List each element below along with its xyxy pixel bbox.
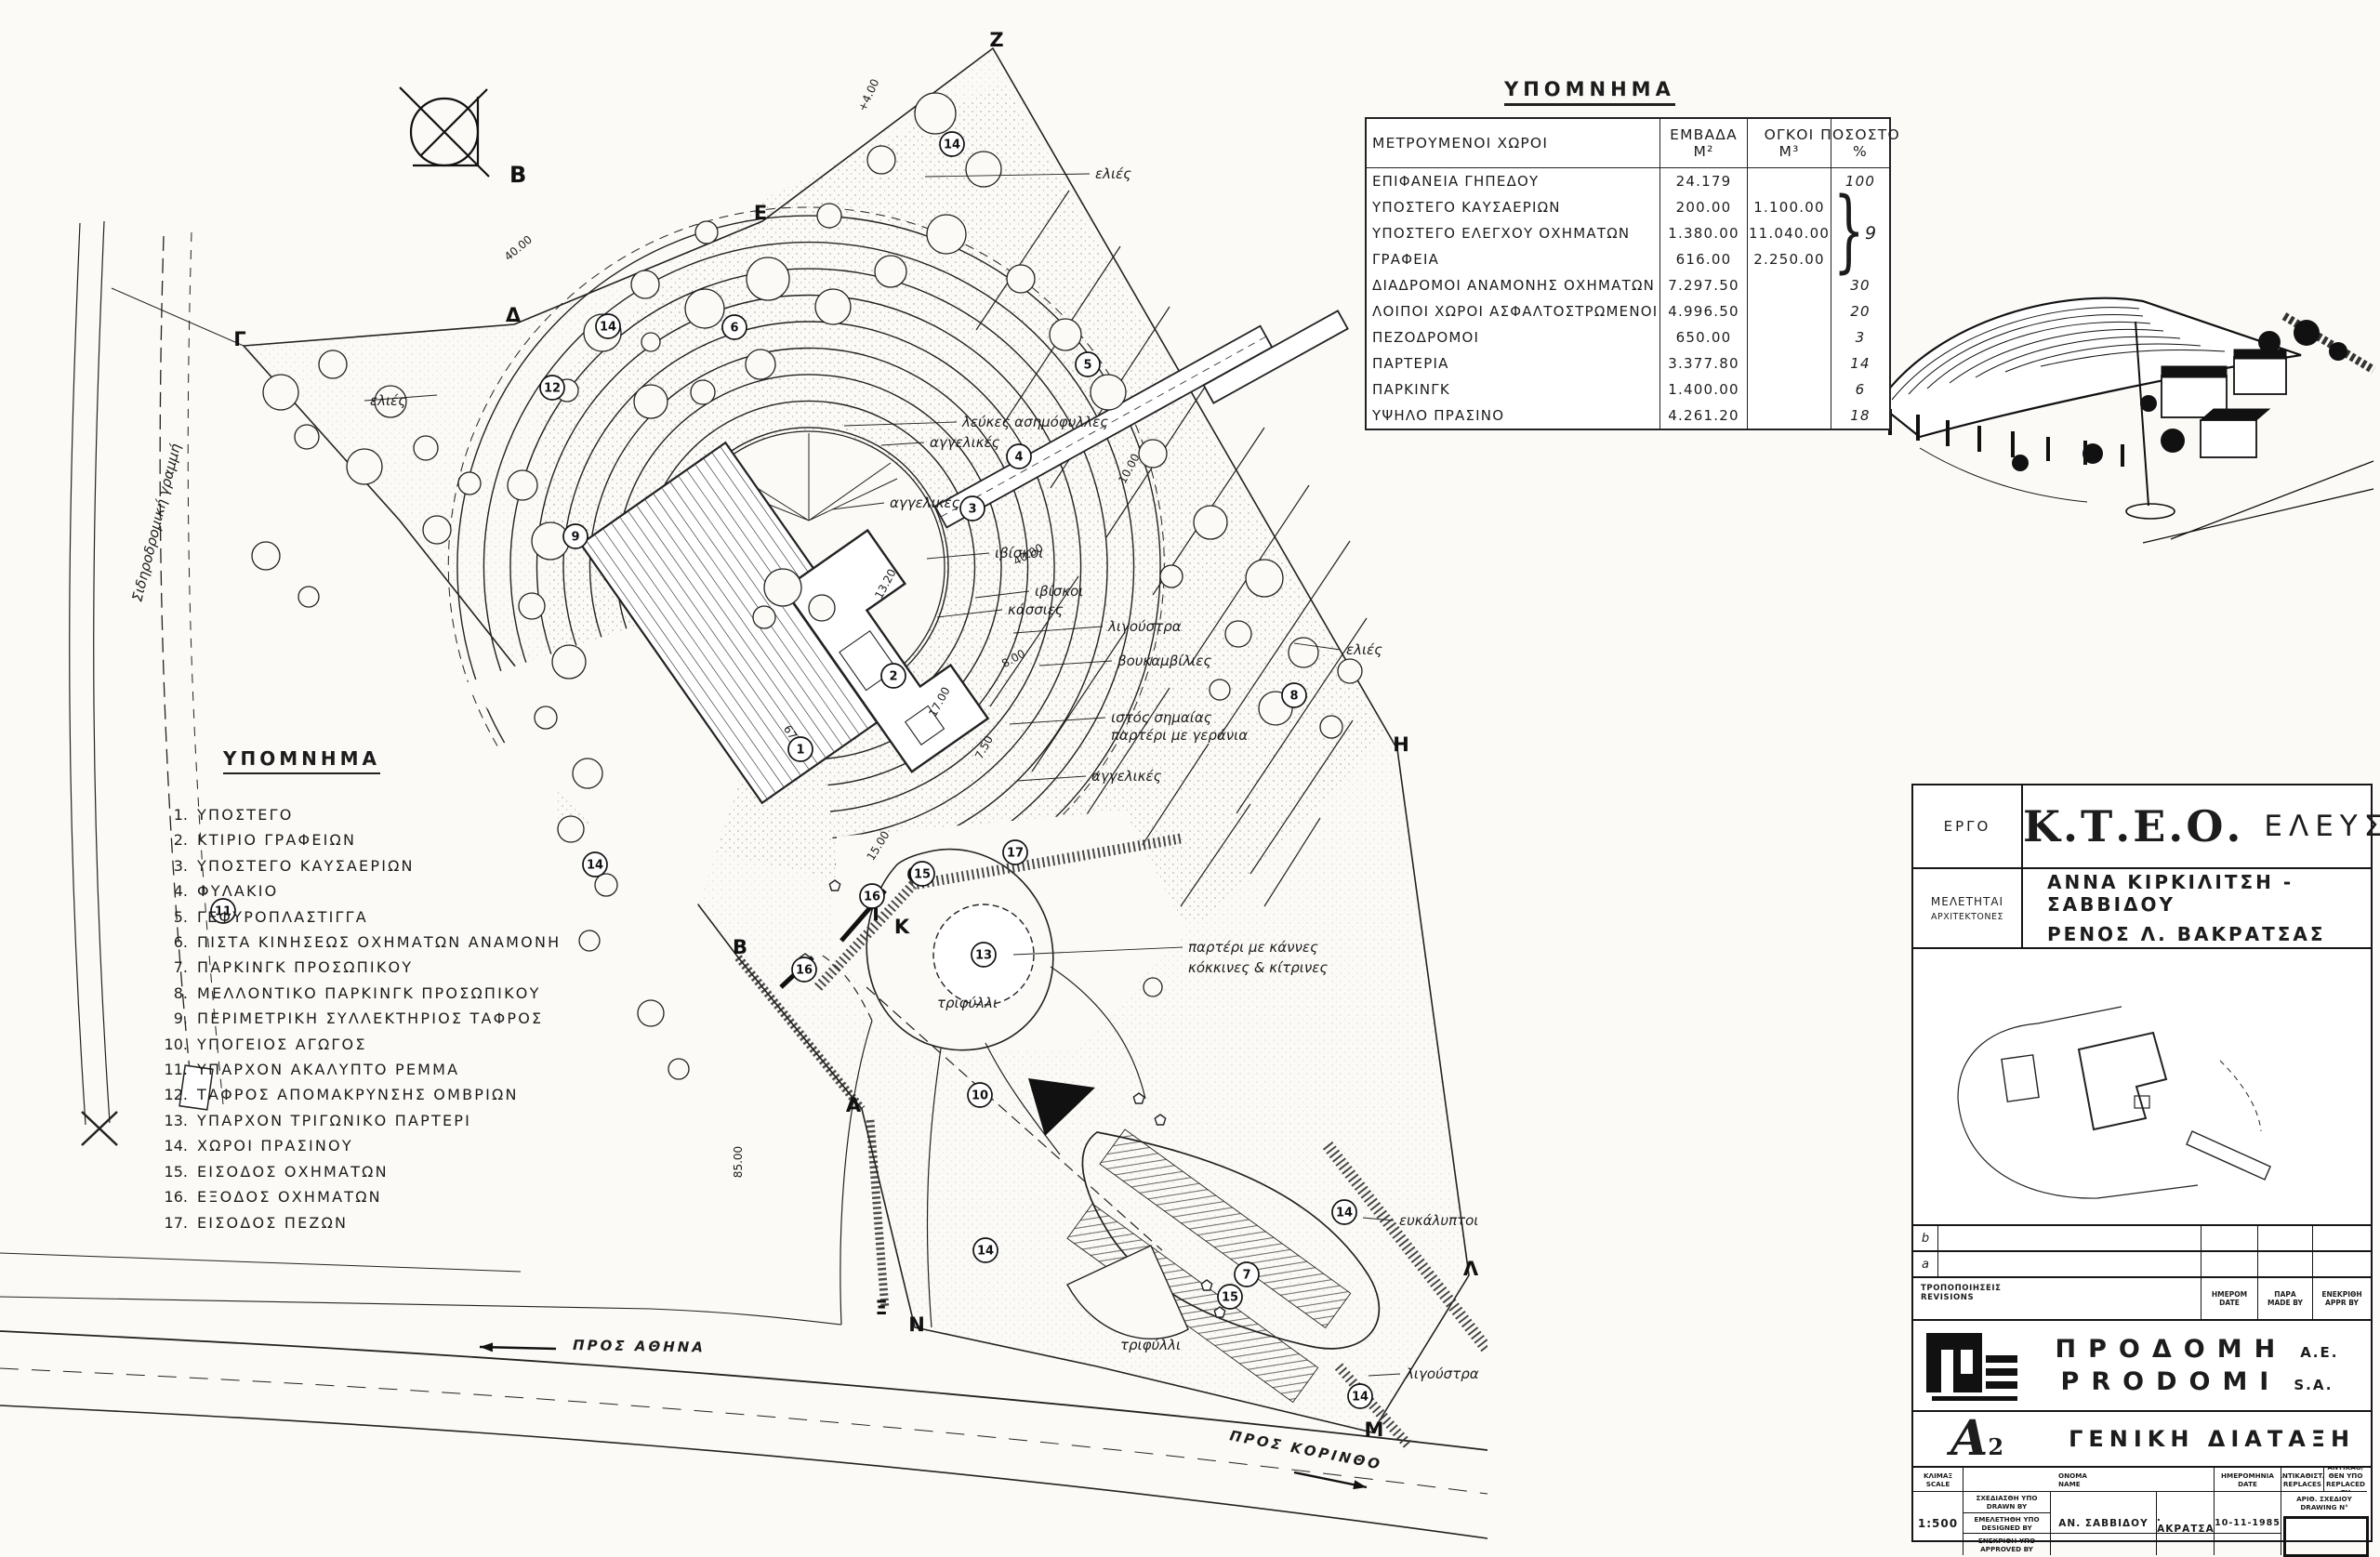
company-name-gr: ΠΡΟΔΟΜΗ	[2056, 1335, 2288, 1364]
svg-text:14: 14	[600, 321, 616, 335]
svg-text:10: 10	[972, 1089, 988, 1103]
plan-marker: 14	[1332, 1200, 1356, 1224]
tree-icon	[519, 593, 545, 619]
tree-icon	[1091, 375, 1126, 410]
date-label: ΗΜΕΡΟΜΗΝΙΑ	[2221, 1471, 2274, 1480]
tree-icon	[1320, 716, 1342, 738]
designer-name: Ρ. ΒΑΚΡΑΤΣΑΣ	[2157, 1513, 2215, 1534]
plan-note: λεύκες ασημόφυλλες	[961, 414, 1108, 430]
plan-note: ιβίσκοι	[1035, 583, 1083, 600]
rev-made-label: ΠΑΡΑ	[2274, 1290, 2295, 1299]
table-row: ΔΙΑΔΡΟΜΟΙ ΑΝΑΜΟΝΗΣ ΟΧΗΜΑΤΩΝ7.297.5030	[1367, 272, 1889, 298]
tree-icon	[1338, 659, 1362, 683]
architects-label: ΑΡΧΙΤΕΚΤΟΝΕΣ	[1931, 912, 2003, 922]
tree-icon	[753, 606, 775, 628]
legend-item: 6.ΠΙΣΤΑ ΚΙΝΗΣΕΩΣ ΟΧΗΜΑΤΩΝ ΑΝΑΜΟΝΗ	[156, 930, 593, 955]
plan-marker: 6	[722, 315, 747, 339]
designer-name: ΑΝ. ΣΑΒΒΙΔΟΥ	[2058, 1518, 2148, 1529]
tree-icon	[746, 350, 775, 379]
revisions-label-en: REVISIONS	[1921, 1293, 2088, 1302]
plan-letter: Μ	[1365, 1418, 1384, 1441]
drawing-no-box	[2283, 1516, 2369, 1557]
plan-marker: 14	[1348, 1384, 1372, 1408]
tree-icon	[1160, 565, 1183, 587]
tree-icon	[1225, 621, 1251, 647]
svg-text:9: 9	[571, 531, 579, 545]
sheet-code: A2	[1950, 1415, 2003, 1463]
plan-marker: 16	[792, 957, 816, 982]
plan-note: ιστός σημαίας	[1111, 709, 1212, 726]
tree-icon	[685, 289, 724, 328]
rev-appr-label: ΕΝΕΚΡΙΘΗ	[2321, 1290, 2361, 1299]
area-table-header: ΜΕΤΡΟΥΜΕΝΟΙ ΧΩΡΟΙ ΕΜΒΑΔΑ Μ² ΟΓΚΟΙ Μ³ ΠΟΣ…	[1367, 119, 1889, 168]
svg-text:17: 17	[1007, 847, 1024, 861]
svg-text:14: 14	[1336, 1207, 1353, 1221]
tree-icon	[747, 257, 789, 300]
revision-row-label: a	[1913, 1252, 1938, 1276]
architect-name: ΡΕΝΟΣ Λ. ΒΑΚΡΑΤΣΑΣ	[2047, 923, 2371, 945]
legend-item: 10.ΥΠΟΓΕΙΟΣ ΑΓΩΓΟΣ	[156, 1032, 593, 1057]
tree-icon	[668, 1059, 689, 1079]
tree-icon	[319, 350, 347, 378]
tree-icon	[1289, 638, 1318, 667]
legend: ΥΠΟΜΝΗΜΑ 1.ΥΠΟΣΤΕΓΟ2.ΚΤΙΡΙΟ ΓΡΑΦΕΙΩΝ3.ΥΠ…	[156, 747, 593, 1235]
plan-marker: 14	[940, 132, 964, 156]
tree-icon	[695, 221, 718, 244]
legend-title: ΥΠΟΜΝΗΜΑ	[223, 747, 380, 774]
plan-letter: Β	[733, 936, 747, 958]
plan-letter: Γ	[233, 328, 245, 350]
svg-text:12: 12	[544, 382, 561, 396]
revisions-label-gr: ΤΡΟΠΟΠΟΙΗΣΕΙΣ	[1921, 1284, 2088, 1293]
plan-marker: 2	[881, 664, 906, 688]
drawing-no-label: ΑΡΙΘ. ΣΧΕΔΙΟΥ DRAWING N°	[2281, 1495, 2367, 1511]
tree-icon	[867, 146, 895, 174]
table-row: ΕΠΙΦΑΝΕΙΑ ΓΗΠΕΔΟΥ24.179100	[1367, 168, 1889, 194]
plan-letter: Ν	[908, 1313, 925, 1336]
plan-dim: +4.00	[855, 77, 881, 113]
plan-letter: Α	[846, 1094, 862, 1116]
rev-date-label: ΗΜΕΡΟΜ	[2212, 1290, 2247, 1299]
approved-by-label: ΕΝΕΚΡΙΘΗ ΥΠΟ	[1978, 1537, 2035, 1545]
tree-icon	[638, 1000, 664, 1026]
tree-icon	[641, 333, 660, 351]
table-row: ΥΠΟΣΤΕΓΟ ΚΑΥΣΑΕΡΙΩΝ200.001.100.00	[1367, 194, 1889, 220]
area-summary: ΥΠΟΜΝΗΜΑ ΜΕΤΡΟΥΜΕΝΟΙ ΧΩΡΟΙ ΕΜΒΑΔΑ Μ² ΟΓΚ…	[1365, 78, 1891, 430]
plan-note: λιγούστρα	[1107, 618, 1182, 635]
plan-marker: 16	[860, 884, 884, 908]
plan-dim: 85.00	[732, 1146, 745, 1178]
tree-icon	[508, 470, 537, 500]
plan-marker: 12	[540, 376, 564, 400]
plan-note: Σιδηροδρομική γραμμή	[128, 442, 184, 603]
svg-text:6: 6	[730, 322, 738, 336]
tree-icon	[535, 706, 557, 729]
plan-marker: 13	[972, 943, 996, 967]
plan-marker: 1	[788, 737, 813, 761]
scale-value: 1:500	[1918, 1517, 1958, 1530]
plan-note: κάσσιες	[1008, 601, 1064, 618]
replaced-by-label: ΑΝΤΙΚΑΘ/ΘΕΝ ΥΠΟ	[2324, 1468, 2367, 1480]
plan-note: αγγελικές	[890, 495, 960, 511]
prodomi-logo	[1926, 1329, 2023, 1402]
col-header: ΜΕΤΡΟΥΜΕΝΟΙ ΧΩΡΟΙ	[1367, 119, 1660, 167]
project-name: Κ.Τ.Ε.Ο.	[2023, 801, 2243, 851]
architect-name: ΑΝΝΑ ΚΙΡΚΙΛΙΤΣΗ - ΣΑΒΒΙΔΟΥ	[2047, 871, 2371, 916]
tree-icon	[927, 215, 966, 254]
svg-text:14: 14	[944, 139, 960, 152]
tree-icon	[966, 152, 1001, 187]
svg-text:16: 16	[864, 891, 880, 904]
road-label: ΠΡΟΣ ΑΘΗΝΑ	[573, 1337, 706, 1355]
table-row: ΛΟΙΠΟΙ ΧΩΡΟΙ ΑΣΦΑΛΤΟΣΤΡΩΜΕΝΟΙ4.996.5020	[1367, 298, 1889, 324]
revision-row-label: b	[1913, 1226, 1938, 1250]
date-value: 10-11-1985	[2215, 1518, 2281, 1528]
plan-marker: 17	[1003, 840, 1027, 864]
tree-icon	[552, 645, 586, 679]
plan-letter: Ε	[754, 202, 767, 224]
tree-icon	[1246, 560, 1283, 597]
plan-marker: 8	[1282, 683, 1306, 707]
legend-item: 17.ΕΙΣΟΔΟΣ ΠΕΖΩΝ	[156, 1210, 593, 1235]
plan-note: ελιές	[370, 392, 406, 409]
plan-marker: 14	[596, 314, 620, 338]
tree-icon	[458, 472, 481, 495]
svg-text:5: 5	[1083, 359, 1091, 373]
plan-marker: 4	[1007, 444, 1031, 468]
col-header: ΕΜΒΑΔΑ Μ²	[1660, 119, 1748, 167]
legend-item: 9.ΠΕΡΙΜΕΤΡΙΚΗ ΣΥΛΛΕΚΤΗΡΙΟΣ ΤΑΦΡΟΣ	[156, 1006, 593, 1031]
designers-label: ΜΕΛΕΤΗΤΑΙ	[1931, 895, 2003, 908]
tree-icon	[691, 380, 715, 404]
plan-note: κόκκινες & κίτρινες	[1188, 959, 1328, 976]
plan-note: παρτέρι με γεράνια	[1111, 727, 1248, 744]
plan-marker: 15	[1218, 1285, 1242, 1309]
legend-item: 5.ΓΕΦΥΡΟΠΛΑΣΤΙΓΓΑ	[156, 904, 593, 930]
table-row: ΥΠΟΣΤΕΓΟ ΕΛΕΓΧΟΥ ΟΧΗΜΑΤΩΝ1.380.0011.040.…	[1367, 220, 1889, 246]
legend-item: 2.ΚΤΙΡΙΟ ΓΡΑΦΕΙΩΝ	[156, 827, 593, 852]
svg-text:15: 15	[914, 868, 931, 882]
project-location: ΕΛΕΥΣΙΝΑΣ	[2264, 810, 2380, 843]
area-table: ΜΕΤΡΟΥΜΕΝΟΙ ΧΩΡΟΙ ΕΜΒΑΔΑ Μ² ΟΓΚΟΙ Μ³ ΠΟΣ…	[1365, 117, 1891, 430]
plan-letter: Ξ	[875, 1297, 887, 1319]
north-arrow-icon	[400, 87, 489, 177]
tree-icon	[1139, 440, 1167, 468]
col-header: ΟΓΚΟΙ Μ³	[1748, 119, 1831, 167]
plan-note: ευκάλυπτοι	[1399, 1212, 1478, 1229]
tree-icon	[1007, 265, 1035, 293]
tree-icon	[817, 204, 841, 228]
tree-icon	[532, 522, 569, 560]
plan-note: λιγούστρα	[1405, 1366, 1479, 1382]
svg-text:1: 1	[796, 744, 804, 758]
table-row: ΓΡΑΦΕΙΑ616.002.250.00	[1367, 246, 1889, 272]
legend-item: 12.ΤΑΦΡΟΣ ΑΠΟΜΑΚΡΥΝΣΗΣ ΟΜΒΡΙΩΝ	[156, 1082, 593, 1107]
svg-text:2: 2	[889, 670, 897, 684]
drawn-by-label: ΣΧΕΔΙΑΣΘΗ ΥΠΟ	[1976, 1494, 2037, 1502]
name-label: ΟΝΟΜΑ	[2058, 1471, 2087, 1480]
table-row: ΥΨΗΛΟ ΠΡΑΣΙΝΟ4.261.2018	[1367, 402, 1889, 429]
legend-item: 8.ΜΕΛΛΟΝΤΙΚΟ ΠΑΡΚΙΝΓΚ ΠΡΟΣΩΠΙΚΟΥ	[156, 981, 593, 1006]
tree-icon	[764, 569, 801, 606]
table-row: ΠΕΖΟΔΡΟΜΟΙ650.003	[1367, 324, 1889, 350]
tree-icon	[347, 449, 382, 484]
tree-icon	[915, 93, 956, 134]
svg-text:13: 13	[975, 949, 992, 963]
plan-marker: 7	[1235, 1262, 1259, 1287]
plan-note: ελιές	[1346, 641, 1382, 658]
tree-icon	[809, 595, 835, 621]
tree-icon	[1210, 680, 1230, 700]
company-name-en: PRODOMI	[2061, 1367, 2281, 1396]
area-table-title: ΥΠΟΜΝΗΜΑ	[1504, 78, 1675, 106]
legend-item: 14.ΧΩΡΟΙ ΠΡΑΣΙΝΟΥ	[156, 1133, 593, 1158]
svg-text:4: 4	[1014, 451, 1023, 465]
plan-letter: Λ	[1463, 1258, 1479, 1280]
tree-icon	[298, 587, 319, 607]
legend-item: 16.ΕΞΟΔΟΣ ΟΧΗΜΑΤΩΝ	[156, 1184, 593, 1209]
table-row: ΠΑΡΤΕΡΙΑ3.377.8014	[1367, 350, 1889, 376]
svg-text:16: 16	[796, 964, 813, 978]
plan-letter: Ζ	[989, 29, 1003, 51]
tree-icon	[1050, 319, 1081, 350]
plan-note: αγγελικές	[930, 434, 1000, 451]
plan-note: ελιές	[1095, 165, 1131, 182]
plan-note: παρτέρι με κάννες	[1188, 939, 1318, 956]
legend-item: 1.ΥΠΟΣΤΕΓΟ	[156, 802, 593, 827]
key-plan	[1913, 949, 2371, 1226]
svg-text:14: 14	[1352, 1391, 1368, 1405]
svg-text:14: 14	[977, 1245, 994, 1259]
legend-item: 13.ΥΠΑΡΧΟΝ ΤΡΙΓΩΝΙΚΟ ΠΑΡΤΕΡΙ	[156, 1108, 593, 1133]
plan-note: αγγελικές	[1091, 768, 1162, 785]
plan-note: τριφύλλι	[1120, 1337, 1181, 1353]
level-crossing-icon	[82, 1112, 117, 1145]
col-header: ΠΟΣΟΣΤΟ %	[1831, 119, 1889, 167]
plan-marker: 3	[960, 496, 985, 521]
legend-item: 7.ΠΑΡΚΙΝΓΚ ΠΡΟΣΩΠΙΚΟΥ	[156, 955, 593, 980]
tree-icon	[815, 289, 851, 324]
tree-icon	[414, 436, 438, 460]
legend-item: 11.ΥΠΑΡΧΟΝ ΑΚΑΛΥΠΤΟ ΡΕΜΜΑ	[156, 1057, 593, 1082]
svg-text:15: 15	[1222, 1291, 1238, 1305]
tree-icon	[595, 874, 617, 896]
plan-letter: Η	[1393, 733, 1409, 756]
plan-marker: 10	[968, 1083, 992, 1107]
tree-icon	[295, 425, 319, 449]
project-label: ΕΡΓΟ	[1944, 818, 1991, 835]
legend-item: 4.ΦΥΛΑΚΙΟ	[156, 878, 593, 904]
perspective-sketch	[1864, 262, 2380, 546]
plan-marker: 15	[910, 862, 934, 886]
legend-item: 15.ΕΙΣΟΔΟΣ ΟΧΗΜΑΤΩΝ	[156, 1159, 593, 1184]
plan-note: τριφύλλι	[937, 995, 998, 1011]
scale-label: ΚΛΙΜΑΞ	[1924, 1471, 1952, 1480]
table-row: ΠΑΡΚΙΝΓΚ1.400.006	[1367, 376, 1889, 402]
legend-item: 3.ΥΠΟΣΤΕΓΟ ΚΑΥΣΑΕΡΙΩΝ	[156, 853, 593, 878]
tree-icon	[1194, 506, 1227, 539]
arrow-icon	[480, 1342, 493, 1352]
title-block: ΕΡΓΟ Κ.Τ.Ε.Ο. ΕΛΕΥΣΙΝΑΣ ΜΕΛΕΤΗΤΑΙ ΑΡΧΙΤΕ…	[1911, 784, 2373, 1542]
signature-strip: ΚΛΙΜΑΞ SCALE 1:500 ΣΧΕΔΙΑΣΘΗ ΥΠΟ DRAWN B…	[1913, 1468, 2371, 1540]
svg-text:7: 7	[1242, 1269, 1250, 1283]
svg-text:8: 8	[1289, 690, 1298, 704]
plan-marker: 14	[973, 1238, 998, 1262]
tree-icon	[1144, 978, 1162, 996]
road-label: ΠΡΟΣ ΚΟΡΙΝΘΟ	[1228, 1427, 1383, 1472]
designed-by-label: ΕΜΕΛΕΤΗΘΗ ΥΠΟ	[1974, 1515, 2039, 1524]
plan-marker: 9	[563, 524, 588, 548]
svg-text:3: 3	[968, 503, 976, 517]
tree-icon	[423, 516, 451, 544]
tree-icon	[252, 542, 280, 570]
tree-icon	[263, 375, 298, 410]
plan-note: βουκαμβίλιες	[1117, 653, 1211, 669]
compass-label: Β	[509, 162, 526, 188]
tree-icon	[875, 256, 906, 287]
tree-icon	[631, 270, 659, 298]
plan-dim: 40.00	[502, 233, 535, 264]
drawing-sheet: { "legend_list": { "title": "ΥΠΟΜΝΗΜΑ", …	[0, 0, 2380, 1551]
sheet-title: ΓΕΝΙΚΗ ΔΙΑΤΑΞΗ	[2069, 1426, 2355, 1452]
tree-icon	[634, 385, 668, 418]
replaces-label: ΑΝΤΙΚΑΘΙΣΤΑ	[2281, 1471, 2324, 1480]
plan-letter: Δ	[506, 304, 522, 326]
plan-letter: Κ	[894, 916, 910, 938]
plan-marker: 5	[1076, 352, 1100, 376]
